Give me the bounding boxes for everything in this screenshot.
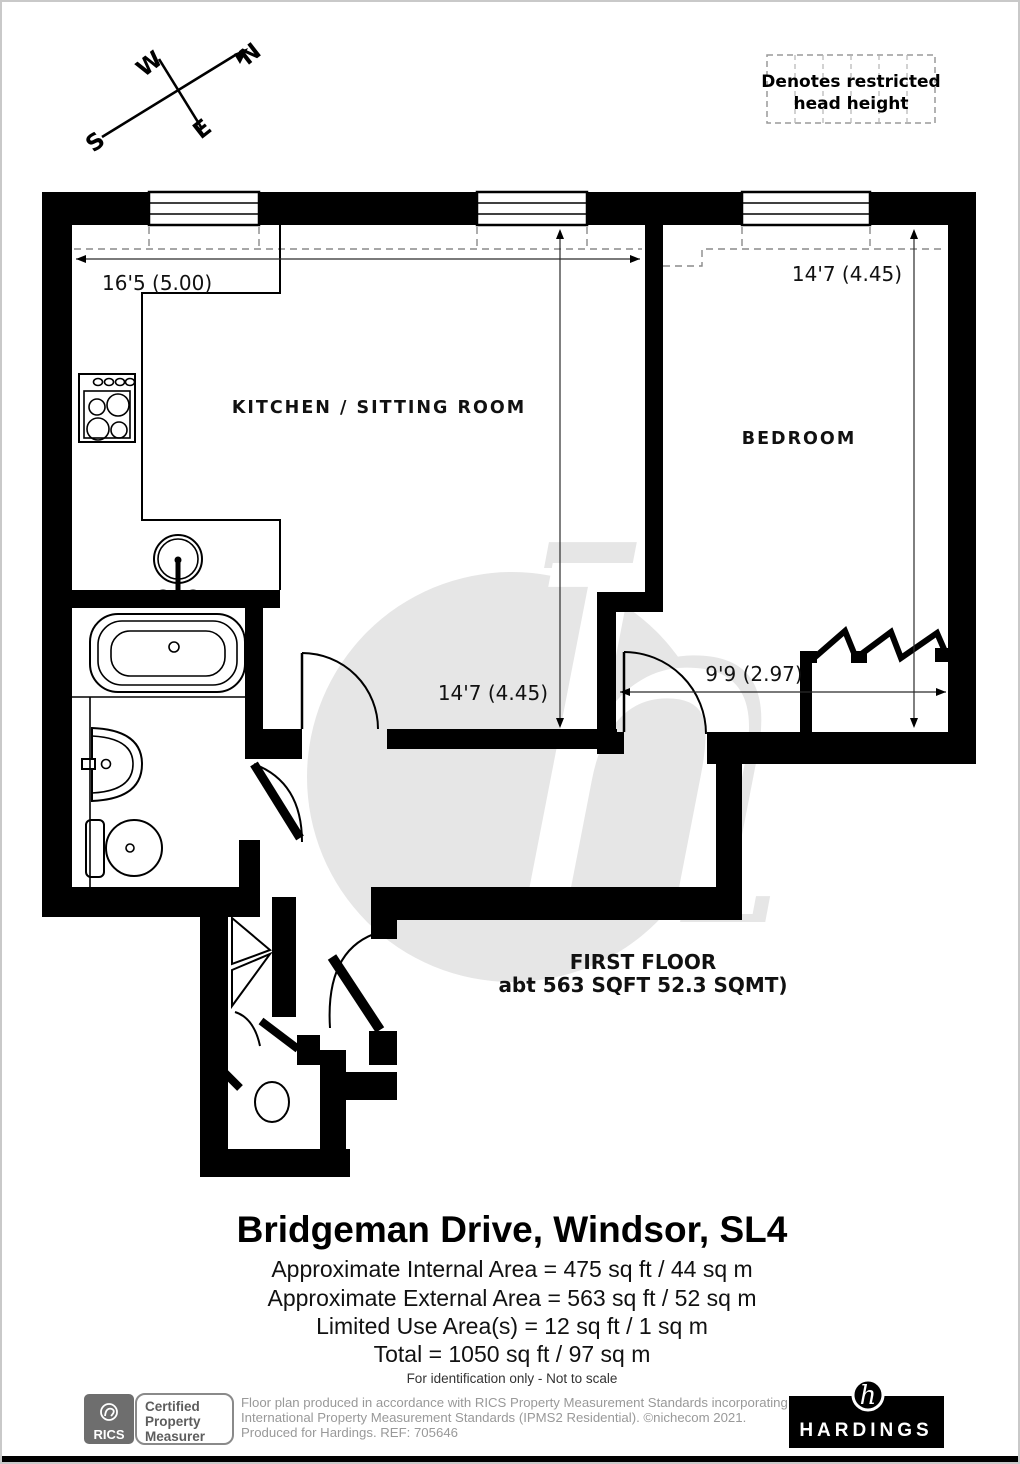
- wall-segment: [948, 192, 976, 764]
- area-line: Approximate External Area = 563 sq ft / …: [267, 1285, 756, 1311]
- footer: RICS Certified Property Measurer Floor p…: [2, 1380, 1020, 1464]
- disclaimer-line: Produced for Hardings. REF: 705646: [241, 1425, 458, 1440]
- restricted-head-height-legend: Denotes restricted head height: [761, 55, 940, 123]
- windows: [149, 192, 870, 225]
- bathtub-icon: [90, 614, 245, 692]
- disclaimer-line: Floor plan produced in accordance with R…: [241, 1395, 788, 1410]
- dim-label: 14'7 (4.45): [792, 262, 902, 286]
- wall-segment: [297, 1035, 320, 1065]
- wall-segment: [707, 732, 976, 764]
- restricted-area-dashes: [74, 227, 946, 266]
- summary-block: Bridgeman Drive, Windsor, SL4 Approximat…: [237, 1209, 788, 1386]
- window: [477, 192, 587, 225]
- stairs: [232, 918, 270, 1006]
- floor-plan-svg: h h N W E S Denotes restricted head heig…: [2, 2, 1020, 1464]
- stove-icon: [79, 374, 135, 442]
- hardings-mark: h: [860, 1381, 877, 1411]
- cert-line: Measurer: [145, 1429, 206, 1444]
- rics-label: RICS: [93, 1427, 124, 1442]
- certified-property-measurer-badge: Certified Property Measurer: [136, 1394, 233, 1444]
- compass-e-label: E: [188, 114, 216, 144]
- floorplan-page: h h N W E S Denotes restricted head heig…: [0, 0, 1020, 1464]
- compass-we-line: [159, 59, 201, 127]
- boiler-icon: [255, 1082, 289, 1122]
- room-label-bedroom: BEDROOM: [742, 429, 856, 449]
- wall-segment: [369, 1031, 397, 1065]
- dim-label: 16'5 (5.00): [102, 271, 212, 295]
- compass-ns-line: [102, 54, 237, 137]
- bathroom-door: [254, 764, 302, 842]
- hardings-logo: h HARDINGS: [789, 1380, 944, 1448]
- compass-w-label: W: [132, 46, 168, 82]
- entry-door: [330, 932, 380, 1030]
- bottom-border-bar: [2, 1456, 1020, 1464]
- wall-segment: [597, 612, 616, 732]
- wall-segment: [371, 887, 397, 939]
- compass-n-label: N: [235, 38, 266, 70]
- wall-segment: [272, 897, 296, 1017]
- wall-segment: [72, 590, 280, 608]
- dim-label: 9'9 (2.97): [705, 662, 802, 686]
- compass-s-label: S: [81, 127, 110, 158]
- wall-segment: [597, 592, 663, 612]
- wall-segment: [200, 910, 228, 1177]
- wall-segment: [320, 1050, 346, 1177]
- area-line: Limited Use Area(s) = 12 sq ft / 1 sq m: [316, 1313, 708, 1339]
- floor-label-line2: abt 563 SQFT 52.3 SQMT): [498, 973, 787, 997]
- wall-segment: [371, 887, 742, 920]
- cert-line: Property: [145, 1414, 201, 1429]
- rics-logo: RICS: [84, 1394, 134, 1444]
- floor-label-line1: FIRST FLOOR: [570, 950, 717, 974]
- wall-segment: [645, 225, 663, 592]
- wall-segment: [597, 732, 624, 754]
- legend-text-line1: Denotes restricted: [761, 72, 940, 92]
- wall-segment: [341, 1072, 397, 1100]
- dimension-kitchen-width: 16'5 (5.00): [76, 255, 640, 295]
- area-line: Approximate Internal Area = 475 sq ft / …: [271, 1256, 752, 1282]
- basin-icon: [82, 728, 142, 801]
- room-label-kitchen: KITCHEN / SITTING ROOM: [232, 398, 526, 418]
- wall-segment: [42, 192, 72, 917]
- toilet-icon: [86, 820, 162, 877]
- cert-line: Certified: [145, 1399, 200, 1414]
- disclaimer: Floor plan produced in accordance with R…: [241, 1395, 788, 1440]
- wall-segment: [245, 608, 263, 729]
- window: [742, 192, 870, 225]
- legend-text-line2: head height: [793, 94, 908, 114]
- compass-rose: N W E S: [81, 38, 266, 158]
- hardings-label: HARDINGS: [799, 1420, 932, 1441]
- dim-label: 14'7 (4.45): [438, 681, 548, 705]
- wall-segment: [387, 729, 617, 749]
- scale-note: For identification only - Not to scale: [407, 1371, 618, 1386]
- wardrobe-icon: [800, 631, 950, 734]
- window: [149, 192, 259, 225]
- disclaimer-line: International Property Measurement Stand…: [241, 1410, 746, 1425]
- area-line: Total = 1050 sq ft / 97 sq m: [374, 1341, 651, 1367]
- kitchen-sink-icon: [154, 535, 202, 597]
- wall-segment: [245, 729, 302, 759]
- page-title: Bridgeman Drive, Windsor, SL4: [237, 1209, 788, 1250]
